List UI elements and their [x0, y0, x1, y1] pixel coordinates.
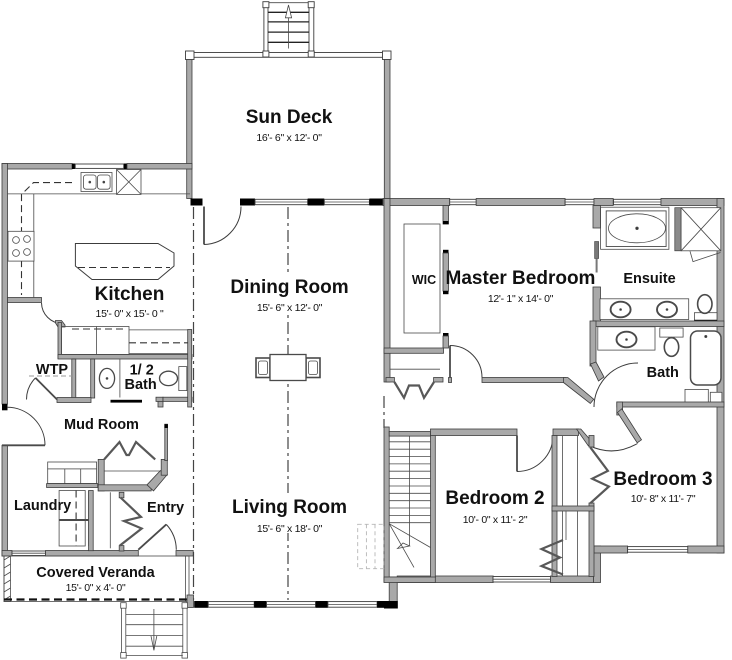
svg-text:10'- 0" x 11'- 2": 10'- 0" x 11'- 2"	[463, 514, 528, 526]
svg-text:Bath: Bath	[124, 377, 156, 393]
svg-text:Entry: Entry	[147, 500, 184, 516]
svg-text:Bedroom 3: Bedroom 3	[613, 469, 712, 490]
svg-text:15'- 6" x 12'- 0": 15'- 6" x 12'- 0"	[257, 302, 323, 314]
svg-text:12'- 1" x 14'- 0": 12'- 1" x 14'- 0"	[488, 293, 554, 305]
svg-text:Laundry: Laundry	[14, 498, 71, 514]
svg-text:Covered Veranda: Covered Veranda	[36, 565, 155, 581]
svg-text:Living Room: Living Room	[232, 497, 347, 518]
svg-text:15'- 6" x 18'- 0": 15'- 6" x 18'- 0"	[257, 523, 323, 535]
svg-text:Bath: Bath	[647, 365, 679, 381]
svg-text:Sun Deck: Sun Deck	[246, 107, 333, 128]
svg-text:15'- 0" x 4'- 0": 15'- 0" x 4'- 0"	[66, 582, 126, 594]
svg-text:Kitchen: Kitchen	[95, 284, 165, 305]
svg-text:Master Bedroom: Master Bedroom	[446, 268, 596, 289]
svg-text:WTP: WTP	[36, 362, 69, 378]
svg-text:Ensuite: Ensuite	[623, 271, 675, 287]
svg-text:Dining Room: Dining Room	[230, 277, 348, 298]
svg-text:Bedroom 2: Bedroom 2	[445, 488, 544, 509]
svg-text:10'- 8" x 11'- 7": 10'- 8" x 11'- 7"	[631, 493, 696, 505]
svg-text:WIC: WIC	[412, 273, 436, 287]
svg-text:16'- 6" x 12'- 0": 16'- 6" x 12'- 0"	[256, 132, 322, 144]
svg-text:Mud Room: Mud Room	[64, 417, 139, 433]
svg-text:15'- 0" x 15'- 0 ": 15'- 0" x 15'- 0 "	[96, 308, 165, 320]
